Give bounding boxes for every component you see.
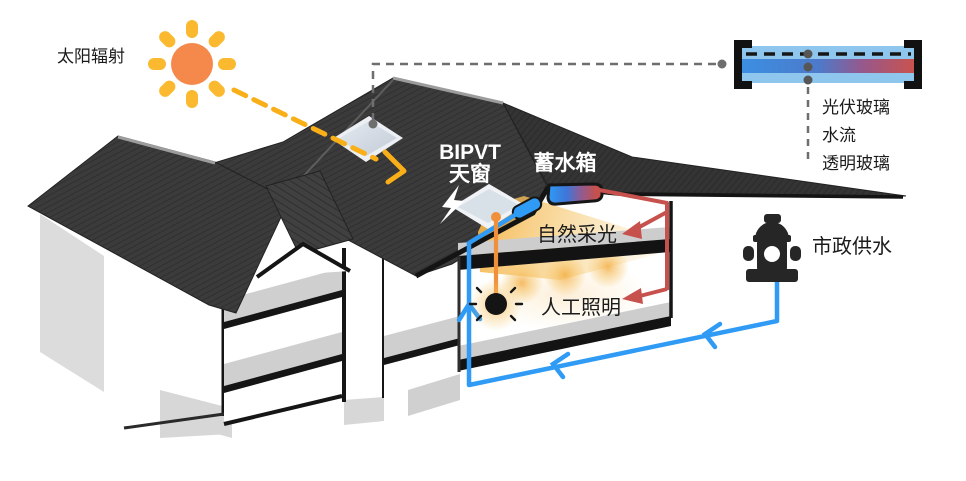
- sun-ray: [218, 58, 236, 70]
- hydrant-top-bolt: [764, 214, 781, 223]
- municipal-water-label: 市政供水: [812, 235, 892, 258]
- bipvt-label-line2: 天窗: [449, 162, 491, 186]
- sun-core: [171, 43, 213, 85]
- water-flow-layer: [742, 59, 914, 73]
- layer-dot-1: [804, 50, 813, 59]
- sun-ray: [206, 29, 227, 50]
- sun-ray: [186, 90, 198, 108]
- connector-dot-skylight: [369, 120, 378, 129]
- water-flow-label: 水流: [822, 126, 856, 145]
- sun-ray: [157, 78, 178, 99]
- wire-top-dot: [491, 212, 501, 222]
- pv-glass-label: 光伏玻璃: [822, 98, 890, 117]
- middle-pillar-base: [344, 397, 384, 425]
- tank-body: [548, 184, 602, 204]
- bulb-body: [485, 293, 507, 315]
- artificial-lighting-label: 人工照明: [541, 296, 621, 319]
- diagram-canvas: 太阳辐射 BIPVT 天窗 蓄水箱 自然采光 人工照明 市政供水 光伏玻璃 水流…: [0, 0, 966, 481]
- hydrant-right-cap: [790, 246, 801, 261]
- water-tank-label: 蓄水箱: [534, 151, 597, 175]
- clear-glass-layer: [742, 73, 914, 83]
- hydrant-port: [764, 246, 780, 262]
- light-bulb-icon: [470, 279, 522, 331]
- sun-ray: [157, 29, 178, 50]
- sun-ray: [148, 58, 166, 70]
- layer-dot-3: [804, 76, 813, 85]
- sun-icon: [148, 20, 236, 108]
- hydrant-base: [746, 269, 798, 282]
- hydrant-left-cap: [743, 246, 754, 261]
- bipvt-system-diagram: 太阳辐射 BIPVT 天窗 蓄水箱 自然采光 人工照明 市政供水 光伏玻璃 水流…: [0, 0, 966, 481]
- natural-daylighting-label: 自然采光: [537, 223, 617, 246]
- connector-dot-detail: [718, 60, 727, 69]
- sun-ray: [206, 78, 227, 99]
- solar-radiation-label: 太阳辐射: [57, 47, 125, 66]
- fire-hydrant-icon: [743, 214, 801, 282]
- transparent-glass-label: 透明玻璃: [822, 154, 890, 173]
- bipvt-label-line1: BIPVT: [439, 141, 501, 164]
- layer-dot-2: [804, 63, 813, 72]
- sun-ray: [186, 20, 198, 38]
